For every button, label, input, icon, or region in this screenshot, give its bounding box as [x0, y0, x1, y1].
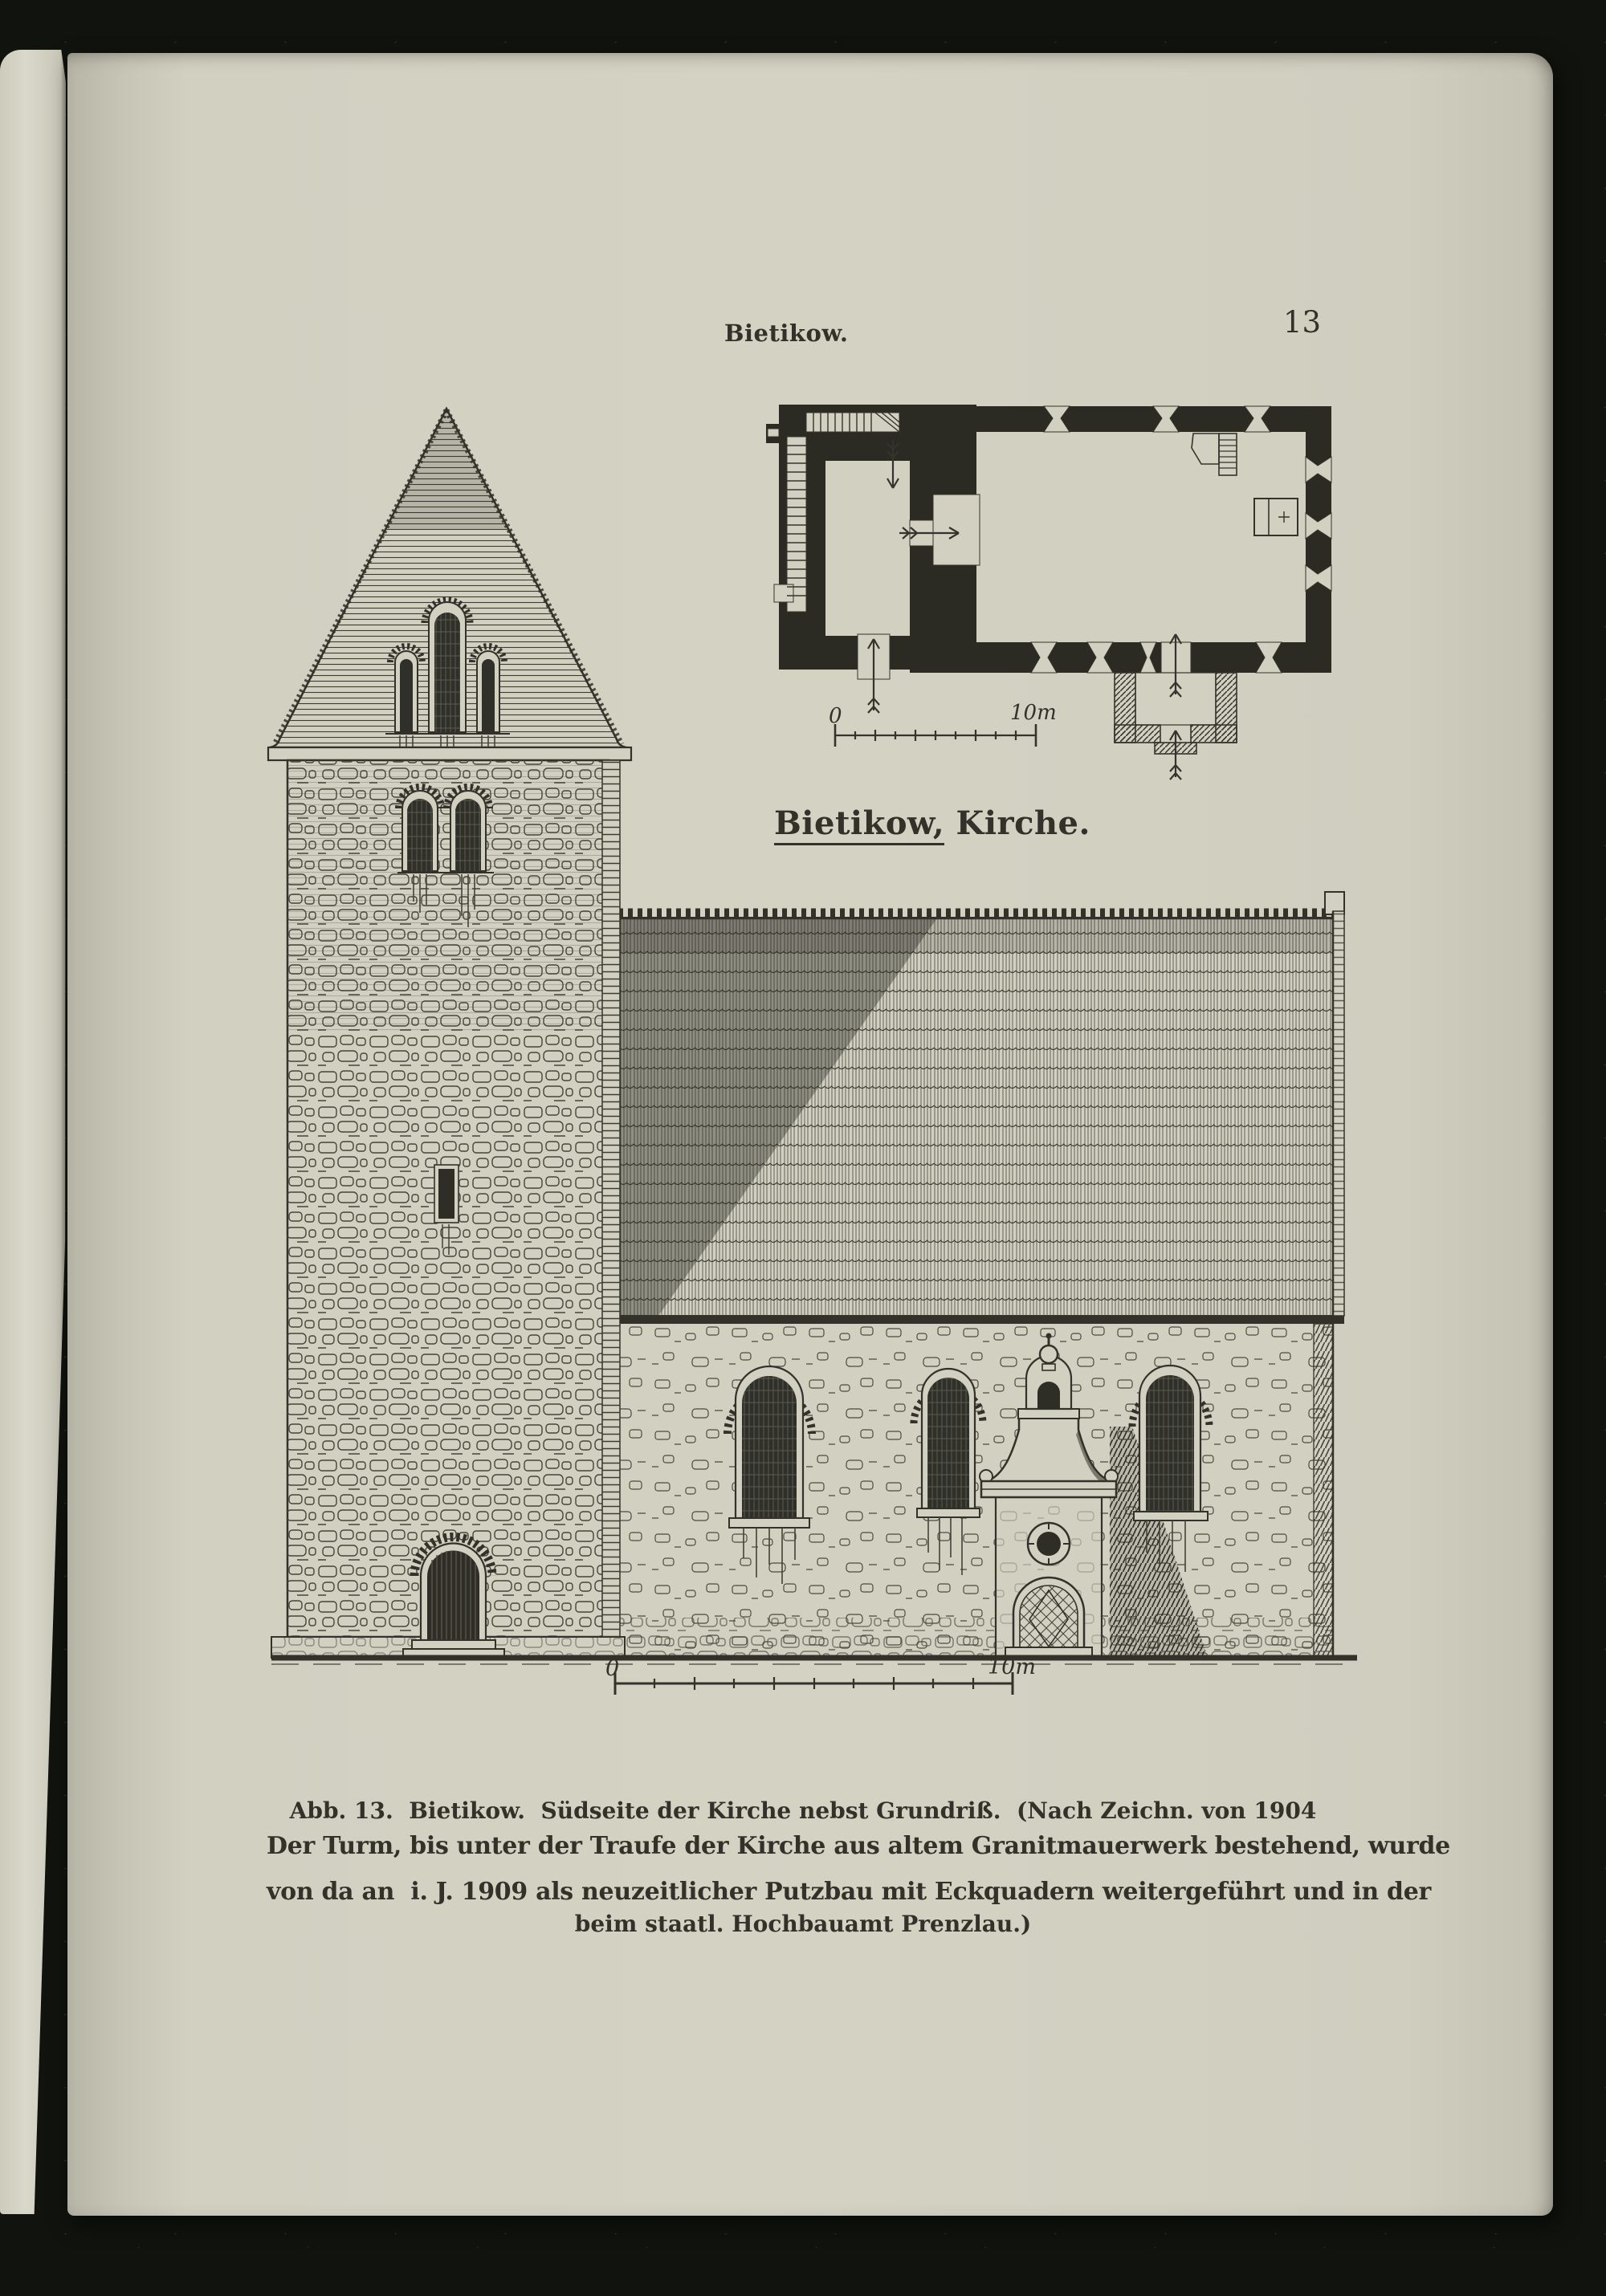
corner-quoins: [1314, 1324, 1333, 1658]
ground-line: [271, 1658, 1357, 1664]
elevation-scale-zero-label: 0: [605, 1656, 619, 1681]
book-page: Bietikow. 13: [67, 53, 1553, 2216]
aedicule-cornice: [1018, 1409, 1079, 1419]
eaves-line: [609, 1316, 1344, 1324]
figure-caption: Abb. 13. Bietikow. Südseite der Kirche n…: [241, 1716, 1365, 2018]
ball-finial: [1040, 1345, 1058, 1363]
elevation-scale-bar: [615, 1672, 1013, 1695]
elevation-figure: 0 10m: [265, 397, 1365, 1714]
running-head: Bietikow.: [724, 320, 848, 347]
scan-background: { "colors": { "background": "#10130e", "…: [0, 0, 1606, 2296]
caption-line-2: beim staatl. Hochbauamt Prenzlau.): [241, 1905, 1365, 1943]
paragraph-line-1: Der Turm, bis unter der Traufe der Kirch…: [267, 1832, 1450, 1860]
paragraph-line-2: von da an i. J. 1909 als neuzeitlicher P…: [267, 1878, 1431, 1906]
caption-line-1: Abb. 13. Bietikow. Südseite der Kirche n…: [241, 1792, 1365, 1830]
elevation-scale-ten-label: 10m: [988, 1655, 1036, 1679]
nave-roof: [609, 892, 1344, 1324]
tower: [268, 409, 631, 1658]
tower-corner-quoins: [602, 760, 620, 1637]
aedicule-niche: [1037, 1382, 1060, 1409]
page-number: 13: [1283, 305, 1321, 340]
tower-cornice: [268, 747, 631, 760]
